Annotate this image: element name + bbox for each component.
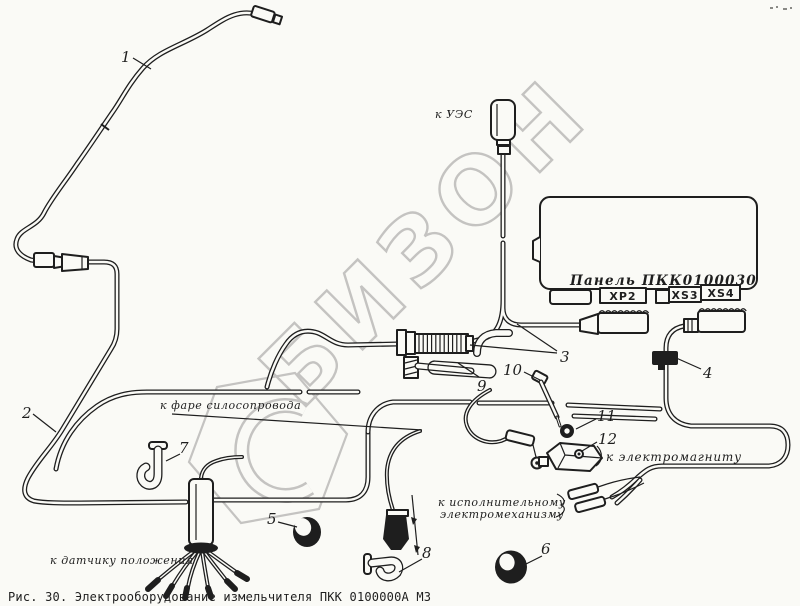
cable-clamp [652,351,678,365]
corner-scan-marks [770,6,792,10]
callout-1-number: 1 [121,48,131,66]
callout-3-number: 3 [560,348,570,366]
connector-label-xs4: XS4 [707,287,734,300]
bowden-cable-path [466,390,508,442]
cable-1-end-terminal [34,253,54,267]
cable-1-path [16,13,262,261]
cable-2-start-terminal [62,254,88,271]
label-to-electromagnet-text: к электромагниту [606,450,742,464]
label-to-electromagnet: к электромагниту [596,446,742,466]
connector-label-xs3: XS3 [671,289,698,302]
callout-6: 6 [526,540,551,564]
panel-side-clip [533,237,540,262]
callout-12: 12 [582,430,617,451]
callout-10: 10 [503,361,540,380]
callout-7: 7 [166,439,189,461]
callout-6-number: 6 [541,540,551,558]
part-5-grommet [292,515,321,547]
cable-clamp-foot [658,365,665,370]
callout-7-number: 7 [179,439,189,457]
callout-12-number: 12 [598,430,617,448]
callout-5-number: 5 [267,510,277,528]
panel: Панель ПКК0100030 ХР2 XS3 XS4 [533,197,757,334]
part-11-nut [560,424,574,438]
callout-2: 2 [21,404,56,432]
part-12-connector [539,443,602,471]
part-9-pin [404,357,496,378]
corrugated-sleeve [397,330,473,355]
cable-center-path [368,402,552,432]
callout-2-number: 2 [21,404,32,422]
panel-connector-blank [550,290,591,304]
dark-plug [383,510,409,550]
cable-center-path [368,402,552,432]
figure-wiring-diagram: БИЗОН [0,0,800,606]
plug-arrow-marks [411,495,420,555]
cable-1-top-connector [251,6,283,26]
callout-8-number: 8 [422,544,432,562]
callout-3: 3 [470,324,570,366]
cable-1-path [16,13,262,261]
harness-plug-a [580,311,649,334]
panel-connector-small [656,290,669,303]
cable-right-loop-path [612,326,788,497]
cable-to-plug-path [387,431,420,513]
part-8-clip [364,554,399,577]
harness-plug-b [684,309,746,332]
cable-right-loop-path [612,326,788,497]
callout-11-number: 11 [597,407,616,425]
callout-10-number: 10 [503,361,523,379]
callout-9-number: 9 [477,377,487,395]
label-to-silage-light-text: к фаре силосопровода [160,399,301,412]
callout-1: 1 [121,48,151,69]
callout-4: 4 [674,357,713,382]
callout-4-number: 4 [702,364,713,382]
label-to-actuator-line2: электромеханизму [440,508,564,521]
figure-caption: Рис. 30. Электрооборудование измельчител… [8,590,431,604]
part-6-grommet [495,551,527,584]
label-to-position-sensor: к датчику положения [50,554,194,567]
part-10-bolt [531,370,560,426]
label-to-ues: к УЭС [435,108,473,121]
connector-label-xp2: ХР2 [609,290,636,303]
harness-sleeve [184,479,218,554]
label-to-actuator: к исполнительному электромеханизму [438,494,566,521]
part-7-clip [141,442,167,485]
bowden-barrel [505,430,542,469]
